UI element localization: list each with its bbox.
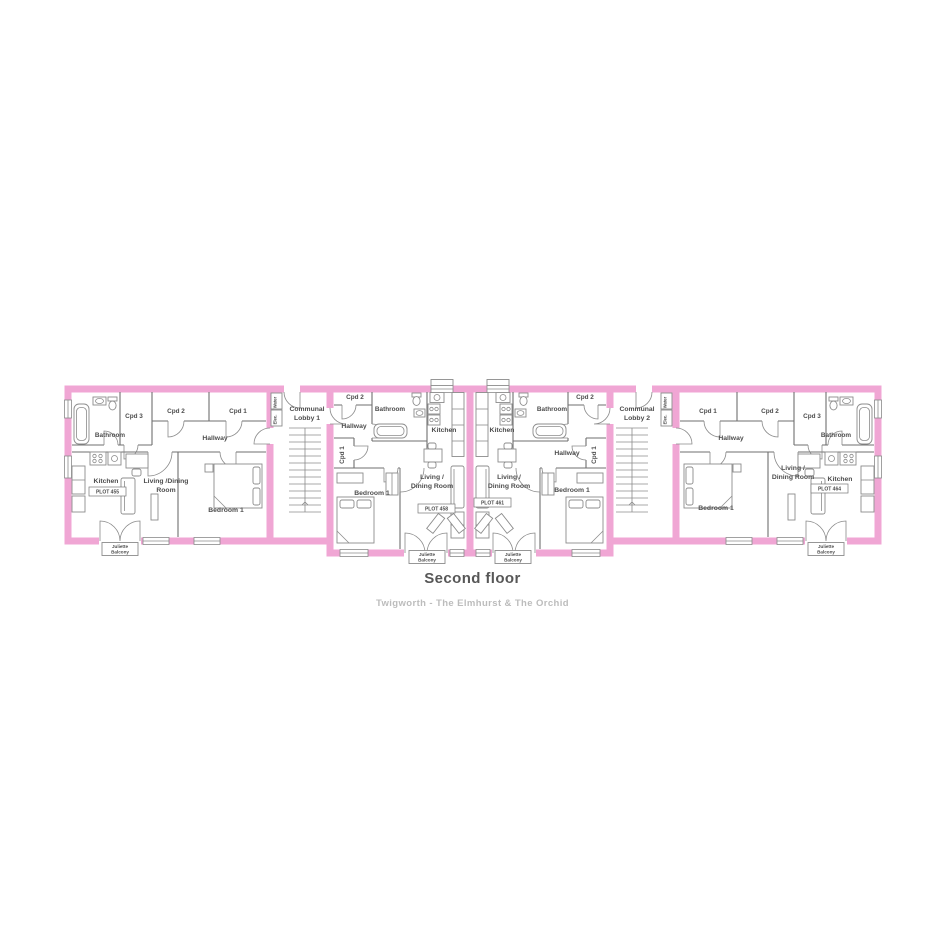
balcony-label-1: Juliette	[818, 544, 835, 549]
room-label-kitchen: Kitchen	[432, 427, 457, 434]
entrance-opening	[267, 428, 274, 444]
bathtub-icon	[74, 404, 89, 444]
room-label-living-1: Living /Dining	[144, 478, 189, 485]
balcony-label-1: Juliette	[112, 544, 129, 549]
room-label-living-1: Living /	[420, 474, 444, 481]
tv-unit-icon	[151, 494, 158, 520]
cpd2-door-arc	[342, 405, 356, 419]
room-label-cpd3: Cpd 3	[125, 413, 143, 420]
balcony-label-1: Juliette	[505, 552, 522, 557]
living-door-arc	[148, 452, 172, 476]
room-label-living-1: Living /	[497, 474, 521, 481]
room-label-hallway: Hallway	[554, 450, 580, 457]
room-label-hallway: Hallway	[341, 423, 367, 430]
cpd1-door-arc	[226, 421, 242, 437]
floor-title: Second floor	[0, 570, 945, 587]
room-label-bathroom: Bathroom	[375, 406, 405, 413]
basin-icon	[93, 397, 106, 405]
lobby-entrance-opening	[284, 386, 300, 393]
plot-number: PLOT 458	[425, 507, 448, 513]
toilet-icon	[108, 397, 117, 410]
lobby-1-label-2: Lobby 1	[294, 415, 320, 422]
room-label-living-2: Dining Room	[772, 474, 814, 481]
communal-lobby-1-geometry	[271, 386, 321, 513]
room-label-cpd3: Cpd 3	[803, 413, 821, 420]
staircase-icon	[616, 428, 648, 512]
room-label-cpd1: Cpd 1	[229, 408, 247, 415]
lobby-2-label-2: Lobby 2	[624, 415, 650, 422]
basin-icon	[414, 409, 425, 417]
room-label-bedroom: Bedroom 1	[208, 507, 244, 514]
balcony-label-1: Juliette	[419, 552, 436, 557]
lobby-2-label-1: Communal	[619, 406, 654, 413]
floor-plan-drawing: Bathroom Cpd 3 Cpd 2 Cpd 1 Hallway Kitch…	[0, 0, 945, 945]
room-label-bedroom: Bedroom 1	[354, 490, 390, 497]
floorplan-page: Bathroom Cpd 3 Cpd 2 Cpd 1 Hallway Kitch…	[0, 0, 945, 945]
room-label-living-2: Dining Room	[488, 483, 530, 490]
room-label-kitchen: Kitchen	[94, 478, 119, 485]
roof-bay-icon	[431, 380, 453, 386]
room-label-cpd1: Cpd 1	[591, 446, 598, 464]
balcony-label-2: Balcony	[111, 550, 129, 555]
bed-icon	[205, 464, 262, 508]
balcony-label-2: Balcony	[817, 550, 835, 555]
room-label-kitchen: Kitchen	[490, 427, 515, 434]
dining-table-icon	[126, 454, 148, 476]
bed-icon	[337, 473, 374, 543]
elec-label: Elec.	[663, 415, 668, 425]
cpd1-door-arc	[354, 446, 368, 460]
room-label-bathroom: Bathroom	[821, 432, 851, 439]
balcony-label-2: Balcony	[504, 558, 522, 563]
room-label-living-1: Living /	[781, 465, 805, 472]
room-label-cpd1: Cpd 1	[699, 408, 717, 415]
water-label: Water	[663, 396, 668, 408]
room-label-living-2: Room	[156, 487, 175, 494]
room-label-bathroom: Bathroom	[95, 432, 125, 439]
toilet-icon	[412, 393, 421, 405]
room-label-hallway: Hallway	[718, 435, 744, 442]
room-label-cpd1: Cpd 1	[339, 446, 346, 464]
bathtub-icon	[374, 424, 407, 438]
room-label-cpd2: Cpd 2	[167, 408, 185, 415]
room-label-bedroom: Bedroom 1	[554, 487, 590, 494]
water-label: Water	[273, 396, 278, 408]
plot-number: PLOT 455	[96, 490, 119, 496]
room-label-living-2: Dining Room	[411, 483, 453, 490]
room-label-kitchen: Kitchen	[828, 476, 853, 483]
building-outline	[68, 386, 878, 553]
apartment-1-plan-geometry	[65, 392, 274, 556]
cpd2-door-arc	[168, 421, 184, 437]
room-label-bathroom: Bathroom	[537, 406, 567, 413]
lobby-1-label-1: Communal	[289, 406, 324, 413]
lobby-entrance-opening	[636, 386, 652, 393]
plot-number: PLOT 461	[481, 501, 504, 507]
room-label-cpd2: Cpd 2	[346, 394, 364, 401]
room-label-cpd2: Cpd 2	[761, 408, 779, 415]
elec-label: Elec.	[273, 415, 278, 425]
balcony-label-2: Balcony	[418, 558, 436, 563]
staircase-icon	[289, 428, 321, 512]
room-label-hallway: Hallway	[202, 435, 228, 442]
development-subtitle: Twigworth - The Elmhurst & The Orchid	[0, 598, 945, 609]
room-label-bedroom: Bedroom 1	[698, 505, 734, 512]
room-label-cpd2: Cpd 2	[576, 394, 594, 401]
plot-number: PLOT 464	[818, 487, 841, 493]
